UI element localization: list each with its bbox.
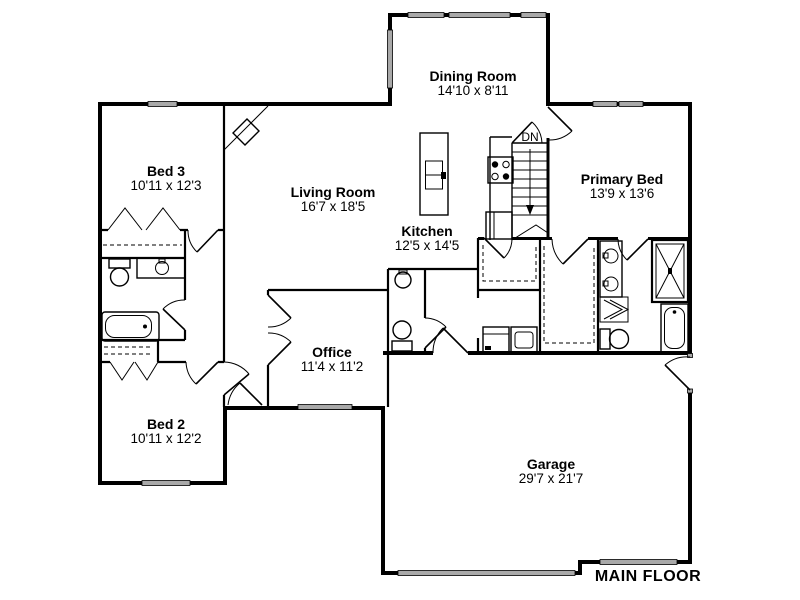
room-label-bed3: Bed 3 xyxy=(147,163,185,179)
room-label-bed2: Bed 2 xyxy=(147,416,185,432)
room-label-dining: Dining Room xyxy=(429,68,516,84)
room-label-office: Office xyxy=(312,344,352,360)
room-dims-primary: 13'9 x 13'6 xyxy=(590,186,654,201)
bath2-toilet xyxy=(109,259,130,286)
room-dims-office: 11'4 x 11'2 xyxy=(301,359,363,374)
room-dims-kitchen: 12'5 x 14'5 xyxy=(395,238,459,253)
window xyxy=(593,102,617,107)
bed3-door xyxy=(188,230,218,252)
window xyxy=(148,102,177,107)
washer xyxy=(483,327,509,352)
window xyxy=(408,13,444,18)
powder-toilet xyxy=(392,321,412,351)
room-label-garage: Garage xyxy=(527,456,575,472)
window xyxy=(388,30,393,88)
primary-linen xyxy=(600,297,628,322)
powder-door xyxy=(425,318,446,348)
walkin-closet xyxy=(544,246,594,343)
mud-closet-door xyxy=(484,238,512,258)
bath2-vanity-sink xyxy=(137,258,185,278)
window xyxy=(142,481,190,486)
room-dims-dining: 14'10 x 8'11 xyxy=(438,83,509,98)
stairs-dn-label: DN xyxy=(521,130,538,144)
primary-toilet xyxy=(600,329,629,349)
bath2-door xyxy=(163,300,185,330)
front-door xyxy=(228,383,262,405)
floor-plan-page: Bed 3 10'11 x 12'3 Living Room 16'7 x 18… xyxy=(0,0,800,600)
garage-door-band xyxy=(398,571,575,576)
bed3-closet xyxy=(103,208,182,245)
garage-service-door xyxy=(665,357,690,390)
window xyxy=(298,405,352,410)
bed2-door xyxy=(186,362,218,384)
hall-door xyxy=(224,362,249,395)
room-labels: Bed 3 10'11 x 12'3 Living Room 16'7 x 18… xyxy=(131,68,702,585)
room-dims-living: 16'7 x 18'5 xyxy=(301,199,365,214)
room-dims-bed3: 10'11 x 12'3 xyxy=(131,178,202,193)
powder-sink xyxy=(395,270,411,288)
primary-shower xyxy=(652,240,688,302)
bed2-closet xyxy=(104,347,158,380)
doors xyxy=(163,107,690,405)
room-label-kitchen: Kitchen xyxy=(401,223,452,239)
stairs-arrow xyxy=(526,149,534,215)
exterior-walls xyxy=(100,15,690,573)
walkin-closet-door xyxy=(552,239,588,264)
office-french-doors xyxy=(268,295,291,365)
room-label-primary: Primary Bed xyxy=(581,171,663,187)
window xyxy=(600,560,677,565)
interior-walls xyxy=(100,104,690,407)
primary-vanity-sinks xyxy=(600,241,622,297)
garage-entry-door xyxy=(433,328,468,353)
window xyxy=(521,13,546,18)
window xyxy=(449,13,510,18)
fireplace xyxy=(224,106,268,150)
bath2-tub xyxy=(102,312,159,341)
room-dims-garage: 29'7 x 21'7 xyxy=(519,471,583,486)
floor-plan-canvas: Bed 3 10'11 x 12'3 Living Room 16'7 x 18… xyxy=(0,0,800,600)
stair-top-door xyxy=(548,107,572,140)
dryer xyxy=(511,327,537,352)
kitchen-island xyxy=(420,133,448,215)
stairs xyxy=(512,149,548,240)
plan-title: MAIN FLOOR xyxy=(595,568,701,585)
room-dims-bed2: 10'11 x 12'2 xyxy=(131,431,202,446)
range-cooktop xyxy=(488,157,513,183)
room-label-living: Living Room xyxy=(291,184,376,200)
kitchen-counter xyxy=(490,137,512,240)
primary-tub xyxy=(661,304,688,352)
window xyxy=(619,102,643,107)
